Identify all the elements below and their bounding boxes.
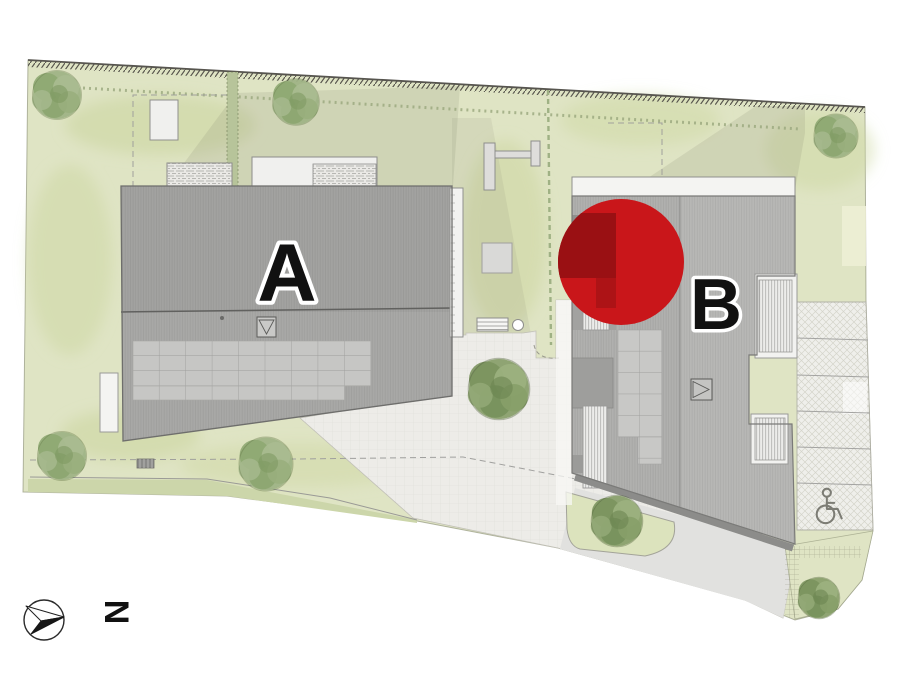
lawn-light-patch	[842, 206, 866, 266]
building-b-label[interactable]: B	[690, 265, 742, 345]
tree	[468, 358, 530, 419]
compass-label: N	[97, 600, 135, 625]
building-a-label[interactable]: A	[257, 228, 316, 319]
entrance-porch-b	[572, 358, 613, 408]
garden-path-horizontal	[785, 546, 861, 558]
roof-vent	[220, 316, 224, 320]
solar-panels-a	[133, 341, 371, 400]
garden-shed	[150, 100, 178, 140]
terrace-a-west	[167, 163, 232, 186]
path-west-of-b	[556, 300, 572, 505]
skylight-b	[691, 379, 712, 400]
garden-table	[513, 320, 524, 331]
balcony-band-b-north	[572, 177, 795, 196]
site-plan-svg: A	[0, 0, 900, 675]
tree	[32, 71, 82, 120]
site-plan-page: A	[0, 0, 900, 675]
skylight-a	[257, 317, 276, 337]
drain-grate	[137, 459, 154, 468]
building-a[interactable]: A	[121, 157, 463, 441]
tree	[591, 495, 643, 546]
parking-area	[797, 302, 873, 530]
balcony-b-east-notch	[755, 274, 797, 358]
balcony-b-east-lower	[751, 414, 788, 464]
tree	[272, 79, 319, 126]
tree	[798, 577, 840, 619]
sandbox	[482, 243, 512, 273]
tree	[239, 437, 293, 491]
tree	[814, 114, 859, 158]
tree	[37, 432, 87, 481]
bench	[477, 318, 508, 331]
terrace-west	[100, 373, 118, 432]
terrace-a-east	[252, 157, 377, 186]
